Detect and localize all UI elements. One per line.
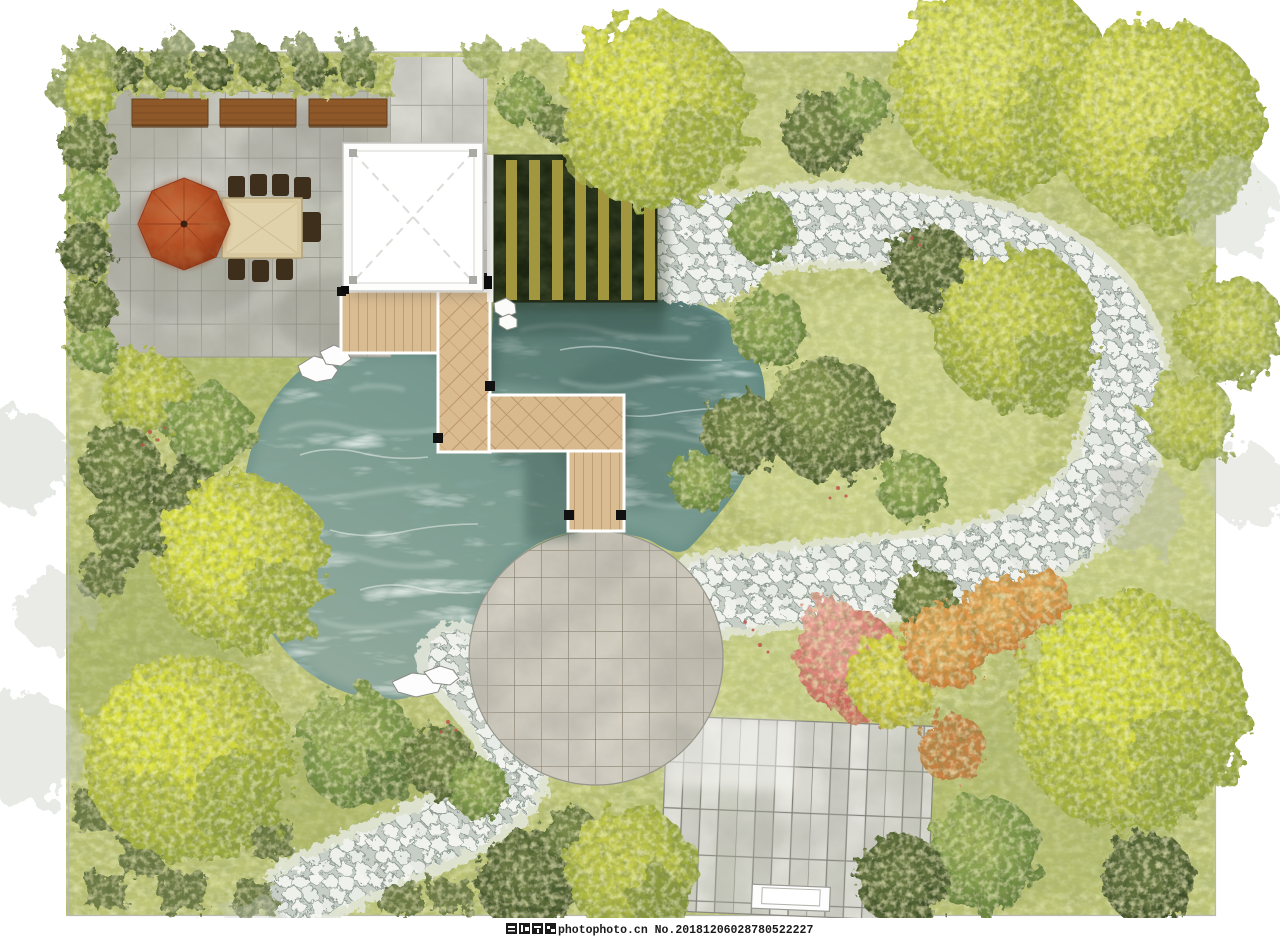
svg-text:photophoto.cn No.201812060287: photophoto.cn No.20181206028780522227 bbox=[558, 924, 813, 937]
